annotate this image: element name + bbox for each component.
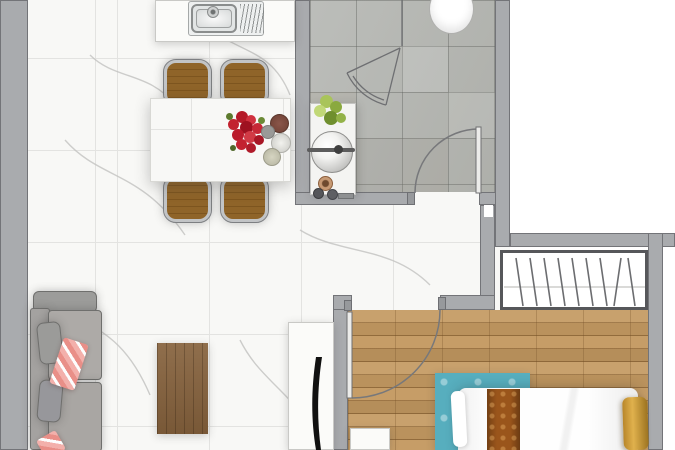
vanity-faucet-bar [307, 148, 355, 152]
door-jamb-block [407, 192, 415, 205]
vanity-plant-icon [312, 93, 350, 135]
wardrobe [500, 250, 648, 310]
plant-foliage [336, 113, 346, 123]
leaf [258, 117, 265, 124]
wall-bedroom-top-mid [440, 295, 495, 310]
wall-right-exterior [648, 233, 663, 450]
gold-pillow [622, 397, 649, 450]
bathroom-tile-patch [356, 138, 402, 192]
leaf [230, 145, 236, 151]
bathroom-tile-patch [402, 46, 448, 92]
bathroom-tile-patch [402, 138, 448, 192]
door-jamb-block [344, 300, 352, 311]
sink-faucet-icon [207, 6, 219, 18]
vanity-jar-dark [313, 188, 324, 199]
vanity-round-basin [311, 131, 353, 173]
wall-bathroom-right [495, 0, 510, 247]
vanity-jar-dark [327, 189, 338, 200]
vanity-faucet-knob [334, 145, 343, 154]
wall-bedroom-left [333, 300, 348, 450]
wall-bathroom-left [295, 0, 310, 205]
wall-notch [484, 205, 493, 217]
flower [246, 143, 256, 153]
bed-runner [487, 389, 520, 450]
dining-chair [221, 176, 268, 222]
nightstand [350, 428, 390, 450]
dining-chair [164, 176, 211, 222]
wall-left-exterior [0, 0, 28, 450]
plate-sage [263, 148, 281, 166]
tv-console [288, 322, 334, 450]
door-jamb-block [438, 297, 446, 310]
bathroom-tile-patch [448, 92, 495, 138]
vanity-tray [338, 193, 354, 199]
sink-drainboard [240, 4, 264, 33]
living-wood-rug [157, 343, 208, 434]
bed [458, 388, 638, 450]
bed-sheet-fold [451, 391, 468, 448]
dining-table [150, 98, 291, 182]
leaf [226, 113, 233, 120]
floor-plan [0, 0, 675, 450]
